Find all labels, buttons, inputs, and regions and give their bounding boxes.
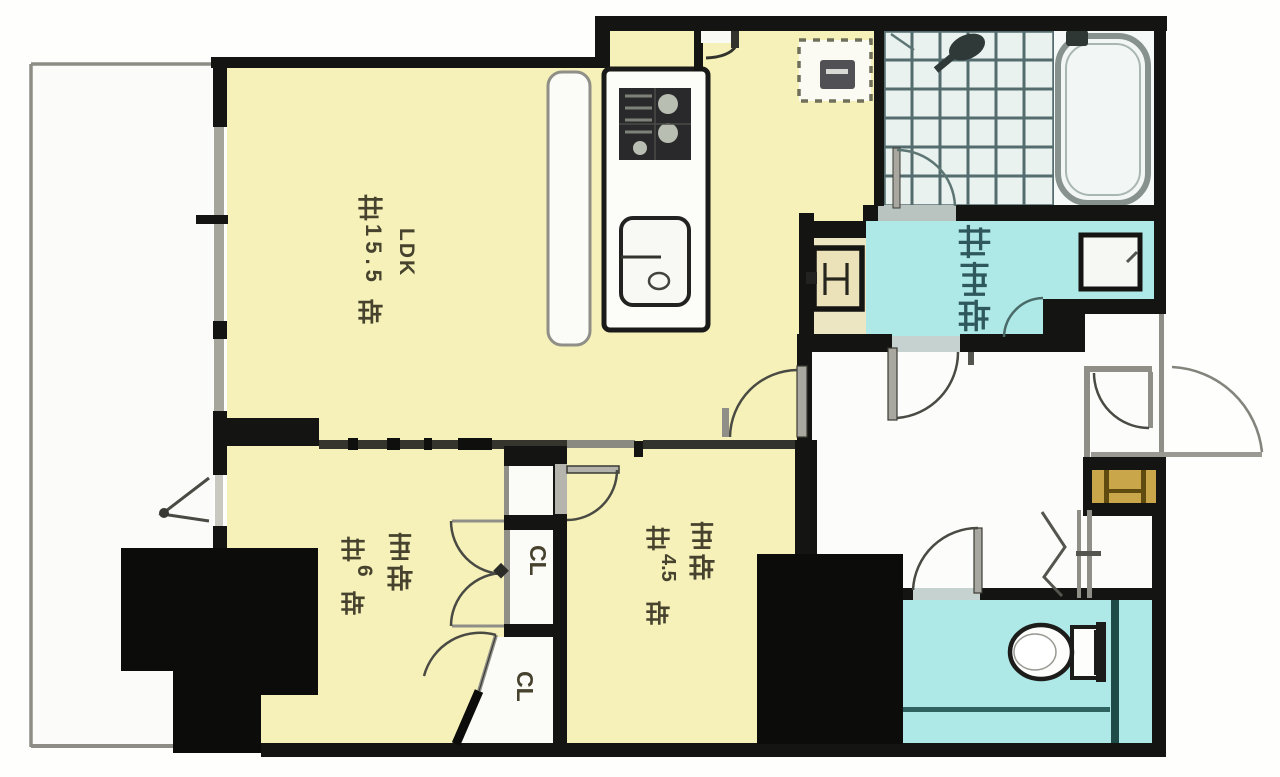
svg-text:4.5: 4.5 [657,554,679,582]
svg-text:CL: CL [525,545,551,576]
svg-text:CL: CL [512,671,538,702]
svg-text:15.5: 15.5 [361,224,386,287]
svg-text:LDK: LDK [395,228,418,277]
svg-text:6: 6 [353,565,376,577]
